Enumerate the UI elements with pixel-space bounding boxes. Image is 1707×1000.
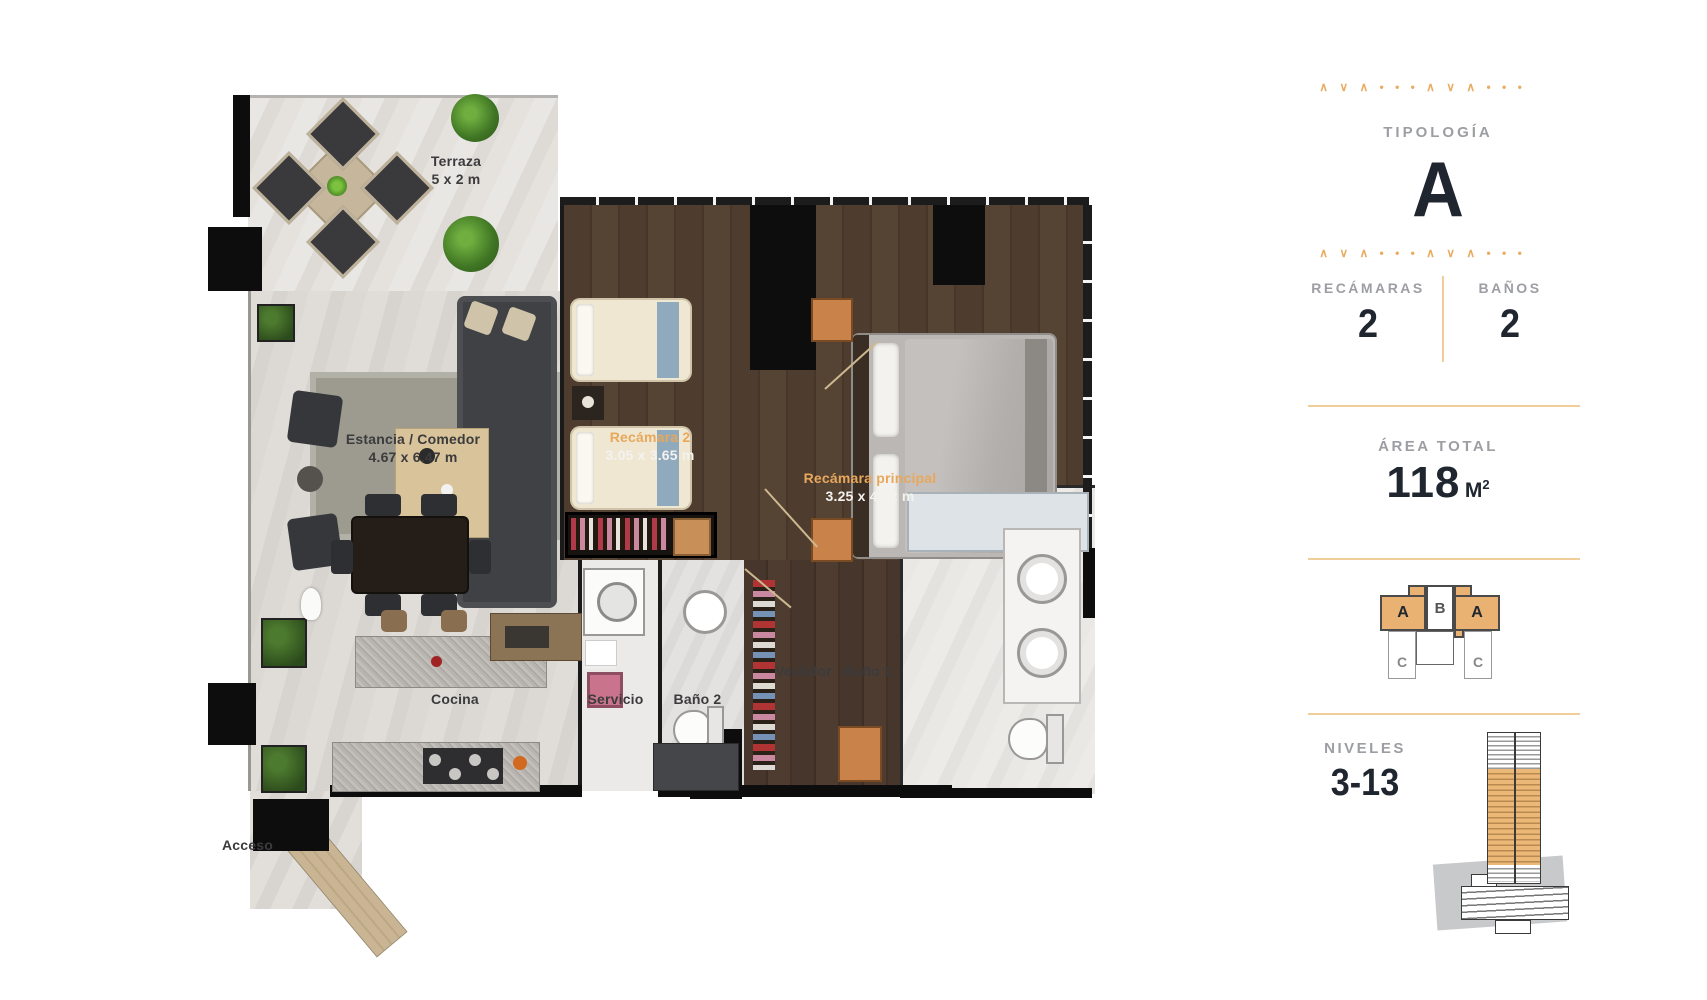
washer-drum [597, 582, 637, 622]
bar-stool [441, 610, 467, 632]
nightstand [811, 518, 853, 562]
wall-segment [233, 95, 250, 217]
area-label: ÁREA TOTAL [1288, 438, 1588, 455]
section-divider [1308, 405, 1580, 407]
toilet-tank [1046, 714, 1064, 764]
towel-stack [585, 640, 617, 666]
side-table [297, 466, 323, 492]
unit-a-right-foot [1454, 629, 1464, 638]
lamp [582, 396, 594, 408]
bed-throw [657, 302, 679, 378]
building-podium [1461, 886, 1569, 920]
sink [1017, 554, 1067, 604]
building-elevation-icon [1435, 732, 1575, 957]
area-value: 118 M2 [1288, 458, 1588, 508]
room-dims: 3.05 x 3.65 m [570, 446, 730, 464]
dining-chair [331, 540, 353, 574]
floor-plan: Terraza 5 x 2 m Estancia / Comedor 4.67 … [205, 88, 1105, 918]
bed-pillow [576, 304, 594, 376]
hanging-clothes [571, 518, 667, 550]
building-base-notch [1495, 920, 1531, 934]
typology-label: TIPOLOGÍA [1288, 124, 1588, 141]
page: Terraza 5 x 2 m Estancia / Comedor 4.67 … [0, 0, 1707, 1000]
bathrooms-label: BAÑOS [1390, 280, 1630, 296]
label-estancia: Estancia / Comedor 4.67 x 6.47 m [323, 430, 503, 466]
dining-table [353, 518, 467, 592]
dining-chair [421, 494, 457, 516]
kitchen-decor [431, 656, 442, 667]
sink [1017, 628, 1067, 678]
info-panel: ∧ ∨ ∧ • • • ∧ ∨ ∧ • • • TIPOLOGÍA A ∧ ∨ … [1190, 80, 1600, 960]
unit-b: B [1426, 585, 1454, 631]
label-cocina: Cocina [395, 690, 515, 708]
label-bano-2: Baño 2 [655, 690, 740, 708]
dresser [838, 726, 882, 782]
room-name: Recámara 2 [570, 428, 730, 446]
plant [443, 216, 499, 272]
label-bano-1: Baño 1 [828, 662, 908, 680]
tower-center-line [1514, 733, 1516, 883]
area-number: 118 [1386, 458, 1460, 507]
burner [449, 768, 461, 780]
plant [451, 94, 499, 142]
wall-segment [208, 683, 256, 745]
decor-chevron-row: ∧ ∨ ∧ • • • ∧ ∨ ∧ • • • [1305, 246, 1540, 260]
fridge [653, 743, 739, 791]
toilet [1008, 718, 1048, 760]
label-servicio: Servicio [573, 690, 658, 708]
sink [683, 590, 727, 634]
area-unit: M [1465, 479, 1483, 502]
burner [429, 754, 441, 766]
building-tower [1487, 732, 1541, 884]
wall-segment [900, 788, 1092, 798]
label-terraza: Terraza 5 x 2 m [396, 152, 516, 188]
planter-box [257, 304, 295, 342]
burner [469, 754, 481, 766]
unit-c-left: C [1388, 631, 1416, 679]
decor-vase [301, 588, 321, 620]
bed-pillow [873, 343, 899, 437]
label-recamara-principal: Recámara principal 3.25 x 4.72 m [780, 469, 960, 505]
section-divider [1308, 558, 1580, 560]
area-unit-sup: 2 [1482, 477, 1489, 492]
unit-a-right: A [1454, 595, 1500, 631]
counter-tray [505, 626, 549, 648]
room-name: Terraza [396, 152, 516, 170]
dining-chair [365, 494, 401, 516]
room-dims: 5 x 2 m [396, 170, 516, 188]
unit-c-right: C [1464, 631, 1492, 679]
room-dims: 4.67 x 6.47 m [323, 448, 503, 466]
bathrooms-value: 2 [1402, 302, 1618, 347]
closet-box [673, 518, 711, 556]
typology-value: A [1300, 144, 1576, 235]
burner [487, 768, 499, 780]
room-name: Recámara principal [780, 469, 960, 487]
planter-box [261, 618, 307, 668]
unit-a-left: A [1380, 595, 1426, 631]
wall-segment [750, 205, 816, 370]
headboard [853, 335, 869, 557]
window-band-top [560, 197, 1089, 205]
dining-chair [469, 540, 491, 574]
table-plant [327, 176, 347, 196]
decor-chevron-row: ∧ ∨ ∧ • • • ∧ ∨ ∧ • • • [1305, 80, 1540, 94]
label-acceso: Acceso [205, 836, 290, 854]
wall-segment [933, 205, 985, 285]
nightstand [811, 298, 853, 342]
wall-segment [208, 227, 262, 291]
room-dims: 3.25 x 4.72 m [780, 487, 960, 505]
pot [513, 756, 527, 770]
wall-segment [1083, 548, 1095, 618]
planter-box [261, 745, 307, 793]
levels-value: 3-13 [1275, 762, 1455, 805]
section-divider [1308, 713, 1580, 715]
unit-location-diagram: A B A C C [1380, 585, 1500, 685]
bar-stool [381, 610, 407, 632]
room-name: Estancia / Comedor [323, 430, 503, 448]
unit-core [1416, 631, 1454, 665]
label-recamara-2: Recámara 2 3.05 x 3.65 m [570, 428, 730, 464]
